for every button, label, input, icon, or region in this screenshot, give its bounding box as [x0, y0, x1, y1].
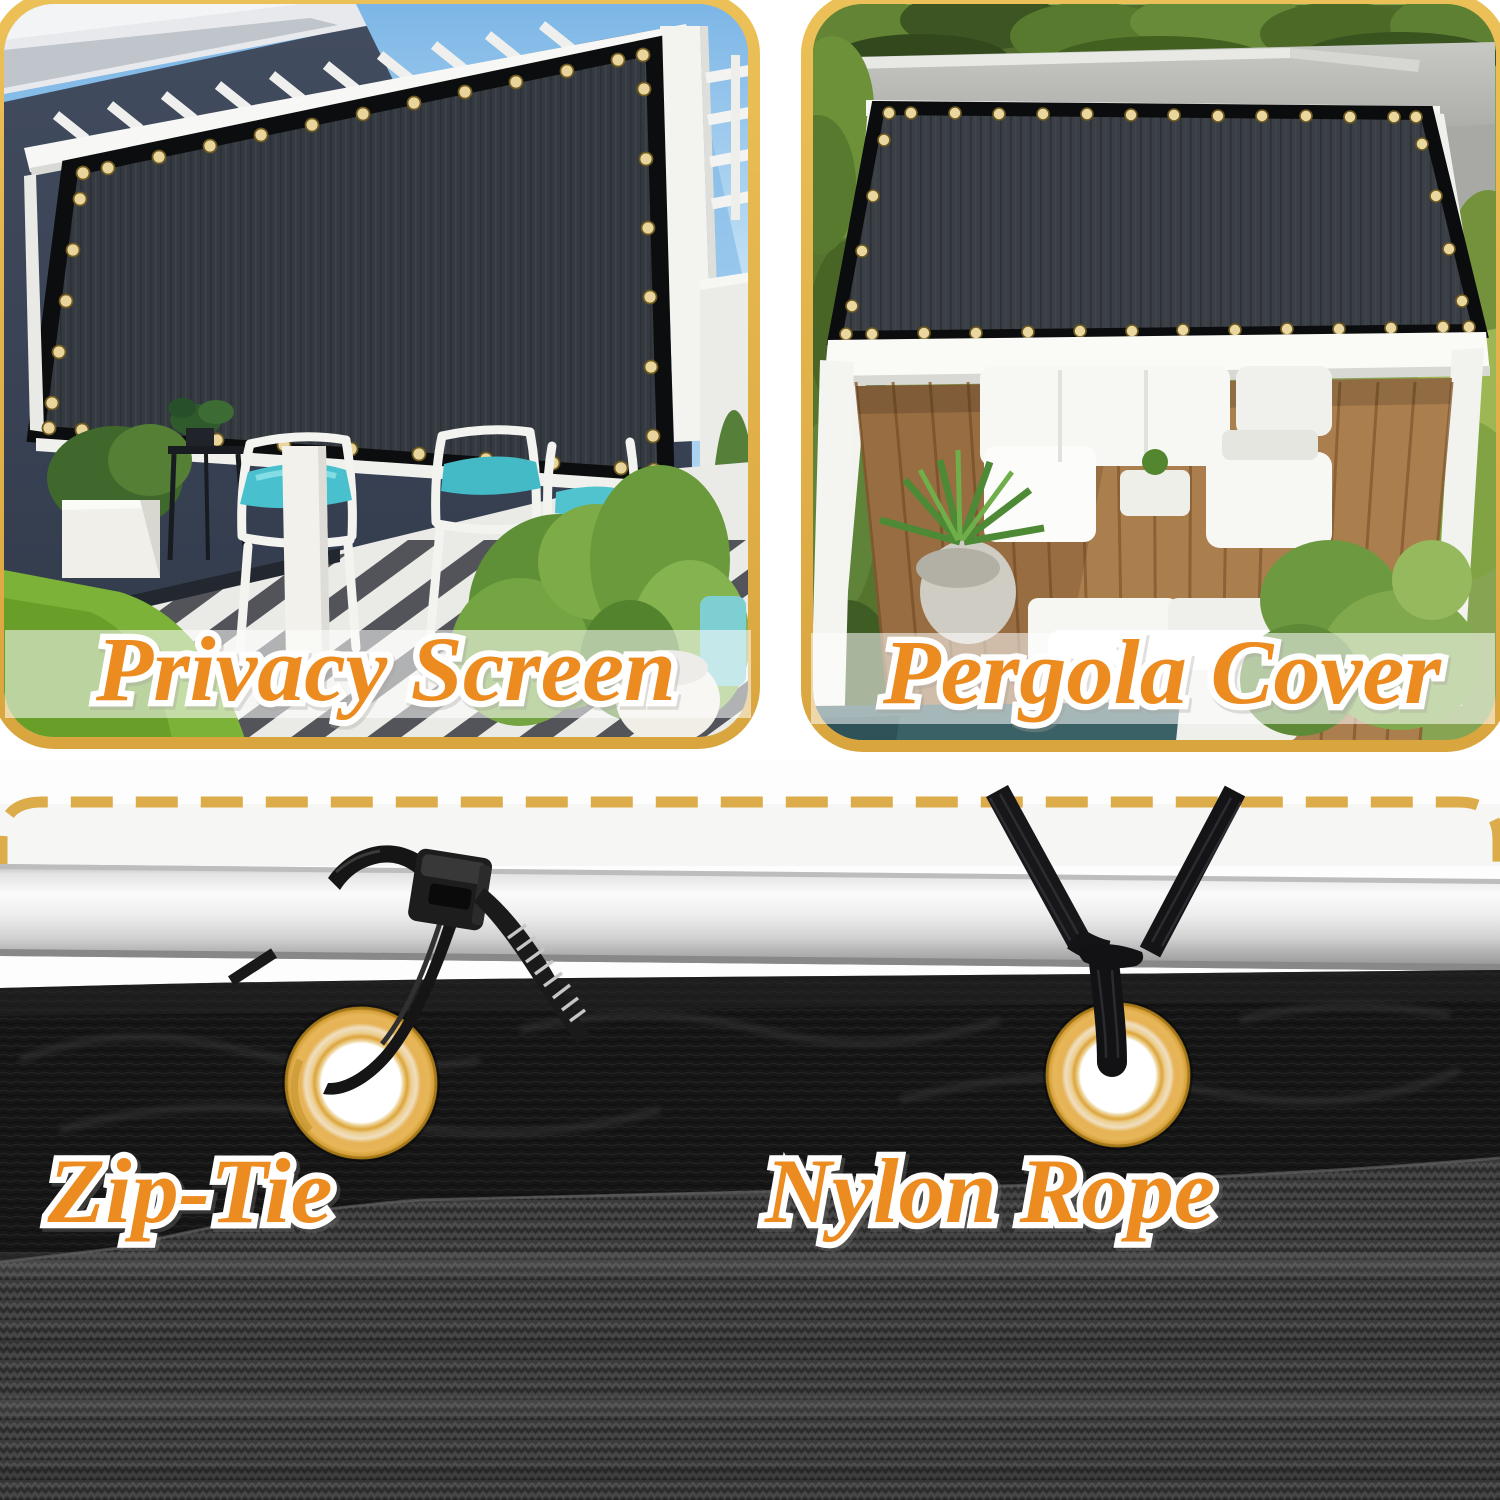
- svg-text:Privacy Screen: Privacy Screen: [95, 618, 676, 720]
- svg-text:Nylon Rope: Nylon Rope: [764, 1140, 1215, 1242]
- svg-text:Zip-Tie: Zip-Tie: [46, 1140, 332, 1242]
- svg-text:Pergola Cover: Pergola Cover: [882, 621, 1442, 723]
